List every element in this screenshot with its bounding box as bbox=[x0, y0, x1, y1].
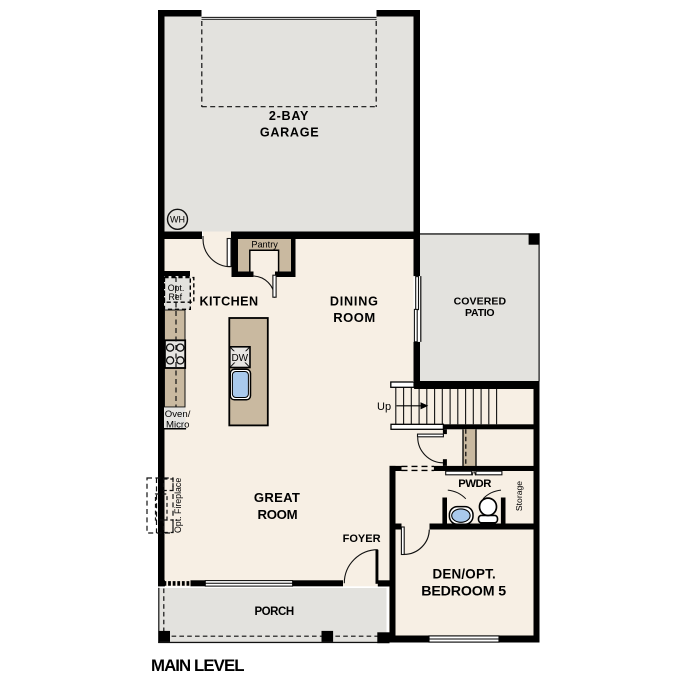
svg-text:Up: Up bbox=[377, 401, 391, 413]
svg-text:COVERED: COVERED bbox=[454, 295, 507, 307]
svg-text:PWDR: PWDR bbox=[458, 478, 491, 490]
svg-text:DEN/OPT.: DEN/OPT. bbox=[432, 567, 496, 582]
svg-text:Opt. Fireplace: Opt. Fireplace bbox=[173, 478, 183, 533]
svg-text:KITCHEN: KITCHEN bbox=[199, 295, 258, 309]
svg-text:GREAT: GREAT bbox=[254, 490, 300, 505]
svg-text:FOYER: FOYER bbox=[343, 533, 381, 545]
svg-text:BEDROOM 5: BEDROOM 5 bbox=[421, 584, 506, 600]
svg-text:Oven/: Oven/ bbox=[165, 409, 191, 420]
svg-text:WH: WH bbox=[170, 215, 185, 225]
svg-text:Micro: Micro bbox=[166, 419, 189, 430]
svg-text:ROOM: ROOM bbox=[333, 310, 375, 325]
svg-text:DINING: DINING bbox=[330, 294, 379, 308]
svg-text:GARAGE: GARAGE bbox=[260, 125, 319, 139]
svg-text:Storage: Storage bbox=[514, 481, 524, 511]
svg-text:ROOM: ROOM bbox=[257, 507, 297, 522]
svg-text:MAIN LEVEL: MAIN LEVEL bbox=[151, 656, 244, 675]
svg-text:PORCH: PORCH bbox=[254, 606, 293, 618]
svg-text:Pantry: Pantry bbox=[251, 240, 278, 250]
svg-text:2-BAY: 2-BAY bbox=[269, 109, 309, 123]
svg-text:DW: DW bbox=[231, 353, 248, 364]
svg-text:PATIO: PATIO bbox=[465, 307, 494, 319]
